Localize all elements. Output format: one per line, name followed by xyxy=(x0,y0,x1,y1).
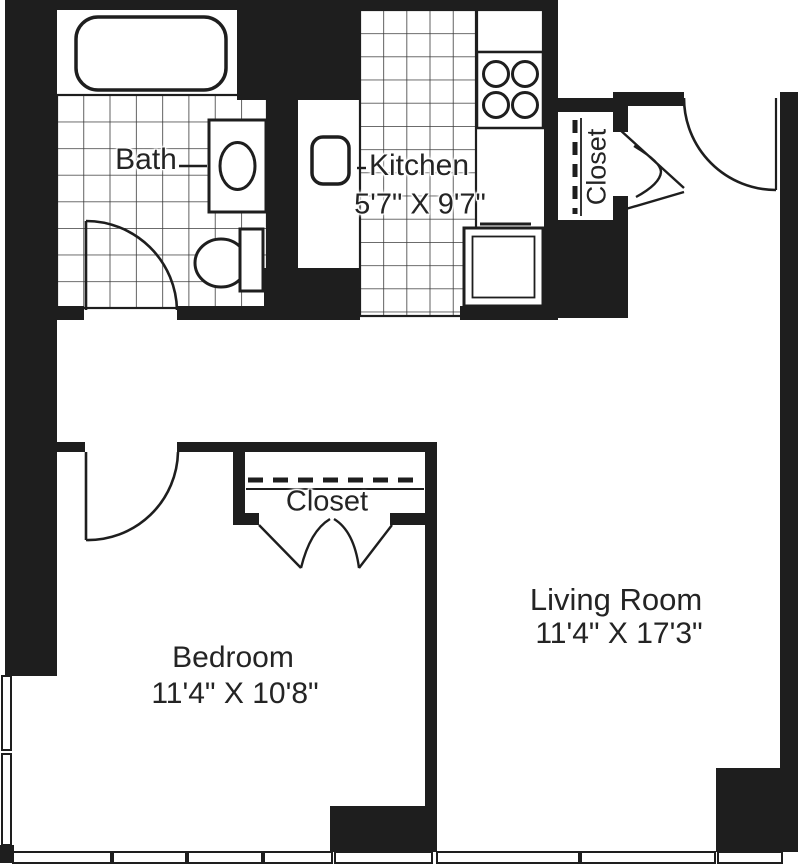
counter-top xyxy=(477,10,543,52)
living-room-dimensions: 11'4" X 17'3" xyxy=(535,617,702,651)
floor-plan-drawing xyxy=(0,0,800,867)
kitchen-dimensions: 5'7" X 9'7" xyxy=(354,189,486,222)
bedroom-label: Bedroom xyxy=(172,641,294,675)
kitchen-sink xyxy=(312,137,349,184)
window-south-8 xyxy=(718,852,782,863)
wall-block-sw-entry xyxy=(544,220,628,318)
wall-bath-kitchen-upper xyxy=(237,0,360,100)
wall-closet-foot-left xyxy=(233,513,259,525)
bedroom-door-arc xyxy=(86,452,178,540)
bath-label: Bath xyxy=(115,143,177,177)
wall-bath-south xyxy=(177,306,266,320)
wall-block-se xyxy=(716,768,798,852)
burner-1 xyxy=(484,62,509,87)
window-south-6 xyxy=(437,852,579,863)
bedroom-closet-label: Closet xyxy=(286,486,368,519)
living-room-label: Living Room xyxy=(530,582,702,618)
window-south-5 xyxy=(335,852,432,863)
wall-left xyxy=(5,0,57,676)
window-left-1 xyxy=(2,676,11,750)
wall-bedroom-top-stub xyxy=(57,442,85,452)
wall-bath-south-stub xyxy=(40,306,84,320)
wall-right xyxy=(780,92,798,852)
burner-2 xyxy=(513,62,538,87)
bathtub xyxy=(76,17,226,90)
wall-entry-top xyxy=(613,92,684,106)
bedroom-dimensions: 11'4" X 10'8" xyxy=(151,677,318,711)
wall-bedroom-living-divider xyxy=(425,442,437,808)
window-south-3 xyxy=(188,852,262,863)
burner-4 xyxy=(513,93,538,118)
burner-3 xyxy=(484,93,509,118)
window-south-2 xyxy=(113,852,186,863)
window-left-2 xyxy=(2,754,11,845)
toilet-tank xyxy=(240,229,263,291)
floor-plan: Bath Kitchen 5'7" X 9'7" Closet Closet B… xyxy=(0,0,800,867)
window-south-7 xyxy=(581,852,715,863)
bedroom-closet-bifold xyxy=(259,519,392,568)
wall-kitchen-south xyxy=(460,306,558,320)
wall-sw-corner xyxy=(0,845,14,863)
counter-appliance xyxy=(464,228,543,306)
entry-door-arc xyxy=(684,98,776,190)
wall-bedroom-top xyxy=(177,442,437,452)
wall-block-south xyxy=(330,806,437,852)
entry-closet-label: Closet xyxy=(582,129,613,206)
wall-under-counter xyxy=(264,268,360,320)
window-south-1 xyxy=(13,852,111,863)
window-south-4 xyxy=(264,852,332,863)
vanity-basin xyxy=(220,143,255,190)
kitchen-label: Kitchen xyxy=(369,149,469,183)
entry-closet-bifold xyxy=(619,129,684,211)
